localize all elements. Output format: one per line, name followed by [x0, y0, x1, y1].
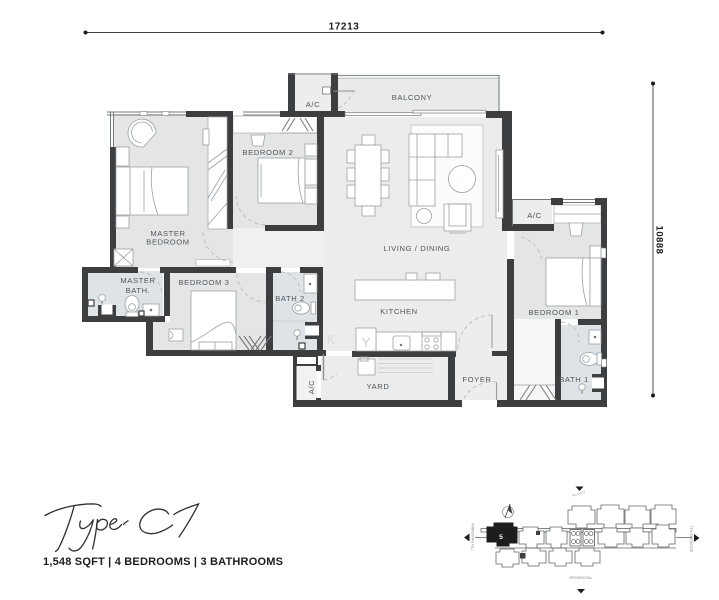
svg-text:A/C: A/C: [527, 211, 541, 220]
svg-text:BATH 1: BATH 1: [559, 375, 589, 384]
svg-text:A/C: A/C: [306, 100, 320, 109]
svg-text:A/C: A/C: [307, 380, 316, 394]
svg-text:BATH.: BATH.: [126, 286, 151, 295]
svg-text:BEDROOM: BEDROOM: [146, 238, 189, 247]
svg-text:RESIDENTIAL: RESIDENTIAL: [570, 576, 593, 580]
svg-text:BEDROOM 1: BEDROOM 1: [529, 308, 580, 317]
svg-text:BALCONY: BALCONY: [392, 93, 433, 102]
svg-text:KITCHEN: KITCHEN: [380, 307, 418, 316]
svg-text:YARD: YARD: [367, 382, 390, 391]
svg-text:BATH 2: BATH 2: [275, 294, 305, 303]
svg-text:5: 5: [499, 534, 503, 541]
svg-text:17213: 17213: [329, 22, 360, 33]
svg-text:7TH OPERATOR: 7TH OPERATOR: [689, 526, 693, 553]
svg-text:BEDROOM 3: BEDROOM 3: [179, 278, 230, 287]
svg-text:MASTER: MASTER: [120, 276, 155, 285]
svg-text:1,548 SQFT | 4 BEDROOMS | 3 BA: 1,548 SQFT | 4 BEDROOMS | 3 BATHROOMS: [43, 556, 283, 568]
svg-text:7TH PANORAMA: 7TH PANORAMA: [471, 523, 475, 551]
svg-text:BEDROOM 2: BEDROOM 2: [243, 148, 294, 157]
svg-text:LIVING / DINING: LIVING / DINING: [384, 244, 451, 253]
svg-text:Y: Y: [362, 335, 371, 350]
svg-text:10888: 10888: [654, 226, 665, 255]
svg-text:FOYER: FOYER: [462, 375, 491, 384]
svg-text:K: K: [327, 332, 336, 347]
